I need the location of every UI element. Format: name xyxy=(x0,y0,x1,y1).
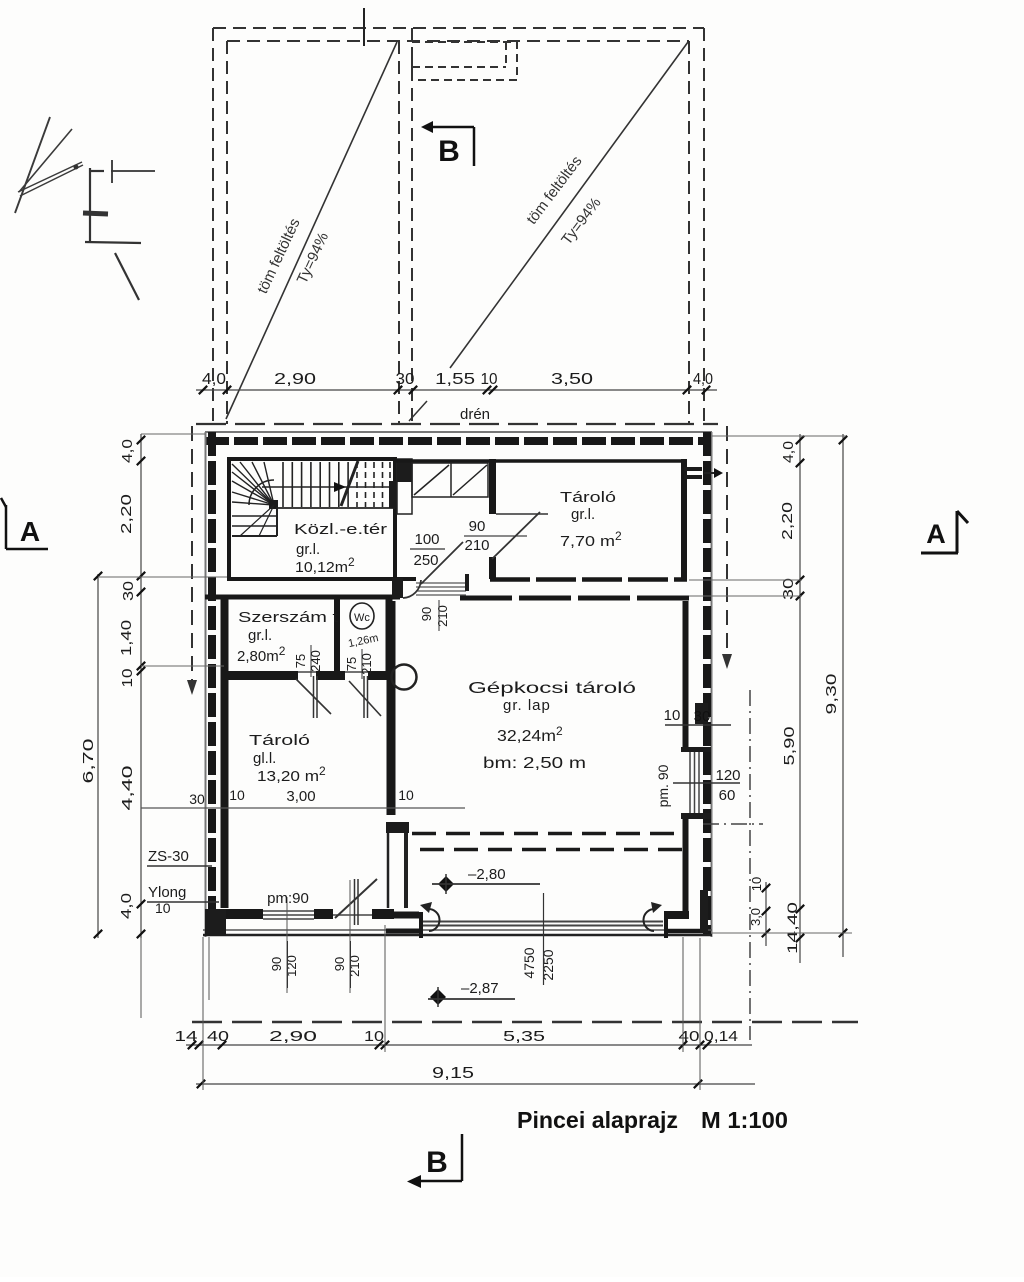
svg-text:30: 30 xyxy=(120,581,137,601)
svg-text:120: 120 xyxy=(284,955,299,977)
svg-text:4750: 4750 xyxy=(521,947,537,978)
svg-text:2,20: 2,20 xyxy=(779,502,796,540)
svg-text:2,20: 2,20 xyxy=(118,494,135,534)
svg-text:30: 30 xyxy=(189,791,205,807)
svg-text:32,24m2: 32,24m2 xyxy=(497,724,563,745)
svg-text:210: 210 xyxy=(435,605,450,627)
svg-text:1,40: 1,40 xyxy=(118,620,135,656)
svg-text:210: 210 xyxy=(359,653,374,675)
svg-text:10: 10 xyxy=(749,877,764,891)
svg-text:–2,80: –2,80 xyxy=(468,866,506,883)
svg-text:4,0: 4,0 xyxy=(118,893,135,919)
svg-text:Közl.-e.tér: Közl.-e.tér xyxy=(294,521,387,538)
svg-text:14,40: 14,40 xyxy=(784,902,800,954)
svg-text:90: 90 xyxy=(332,957,347,971)
svg-text:Wc: Wc xyxy=(354,612,370,624)
svg-text:90: 90 xyxy=(469,518,486,535)
svg-text:3,0: 3,0 xyxy=(748,908,763,926)
svg-text:1,55: 1,55 xyxy=(435,371,475,388)
svg-text:90: 90 xyxy=(269,957,284,971)
svg-text:Tároló: Tároló xyxy=(560,489,616,506)
svg-text:10: 10 xyxy=(481,371,498,388)
svg-text:240: 240 xyxy=(308,650,323,672)
svg-text:9,30: 9,30 xyxy=(823,674,840,715)
svg-text:30: 30 xyxy=(694,708,711,725)
svg-text:40: 40 xyxy=(207,1028,229,1045)
svg-text:4,40: 4,40 xyxy=(119,766,136,811)
svg-text:6,70: 6,70 xyxy=(80,739,97,784)
svg-text:ZS-30: ZS-30 xyxy=(148,848,189,865)
svg-text:2,80m2: 2,80m2 xyxy=(237,644,286,665)
svg-text:13,20 m2: 13,20 m2 xyxy=(257,764,326,785)
svg-text:210: 210 xyxy=(464,537,489,554)
svg-text:3,50: 3,50 xyxy=(551,371,593,388)
svg-text:4,0: 4,0 xyxy=(693,371,713,388)
svg-text:14: 14 xyxy=(175,1028,198,1045)
svg-text:B: B xyxy=(426,1146,448,1179)
svg-text:drén: drén xyxy=(460,406,490,423)
svg-text:10: 10 xyxy=(119,669,136,688)
svg-text:gr.l.: gr.l. xyxy=(296,541,320,558)
svg-text:30: 30 xyxy=(780,578,797,600)
svg-text:10: 10 xyxy=(398,787,414,803)
svg-text:210: 210 xyxy=(347,955,362,977)
svg-text:Pincei alaprajz: Pincei alaprajz xyxy=(517,1107,678,1133)
svg-text:Gépkocsi tároló: Gépkocsi tároló xyxy=(468,680,636,697)
svg-text:gr. lap: gr. lap xyxy=(503,697,551,714)
svg-text:–2,87: –2,87 xyxy=(461,980,499,997)
svg-text:4,0: 4,0 xyxy=(202,371,226,388)
svg-text:bm: 2,50 m: bm: 2,50 m xyxy=(483,755,586,772)
svg-text:Tároló: Tároló xyxy=(249,732,310,749)
svg-text:pm. 90: pm. 90 xyxy=(655,764,671,807)
svg-text:10: 10 xyxy=(364,1028,384,1045)
svg-text:5,35: 5,35 xyxy=(503,1028,545,1045)
svg-text:120: 120 xyxy=(715,767,740,784)
svg-text:9,15: 9,15 xyxy=(432,1065,474,1082)
svg-text:gr.l.: gr.l. xyxy=(248,627,272,644)
svg-text:pm:90: pm:90 xyxy=(267,890,309,907)
svg-text:2,90: 2,90 xyxy=(274,371,316,388)
svg-text:A: A xyxy=(20,516,40,547)
svg-text:4,0: 4,0 xyxy=(119,439,136,463)
svg-text:30: 30 xyxy=(396,371,415,388)
svg-text:2,90: 2,90 xyxy=(269,1028,317,1045)
svg-text:gr.l.: gr.l. xyxy=(571,506,595,523)
svg-text:2250: 2250 xyxy=(540,949,556,980)
svg-text:3,00: 3,00 xyxy=(286,788,315,805)
svg-text:7,70 m2: 7,70 m2 xyxy=(560,529,622,550)
svg-text:10: 10 xyxy=(155,900,171,916)
svg-text:250: 250 xyxy=(413,552,438,569)
svg-text:M 1:100: M 1:100 xyxy=(701,1107,788,1133)
svg-text:10: 10 xyxy=(664,707,681,724)
svg-text:60: 60 xyxy=(719,787,736,804)
svg-text:B: B xyxy=(438,135,460,168)
svg-text:A: A xyxy=(926,519,946,549)
svg-text:gl.l.: gl.l. xyxy=(253,750,276,767)
svg-text:75: 75 xyxy=(344,657,359,671)
svg-text:100: 100 xyxy=(414,531,439,548)
svg-text:4,0: 4,0 xyxy=(780,441,797,463)
svg-text:Ylong: Ylong xyxy=(148,884,186,901)
svg-text:90: 90 xyxy=(419,607,434,621)
svg-text:40: 40 xyxy=(679,1028,700,1045)
svg-text:0,14: 0,14 xyxy=(704,1028,738,1045)
svg-text:10: 10 xyxy=(229,787,245,803)
svg-text:10,12m2: 10,12m2 xyxy=(295,555,355,576)
svg-text:5,90: 5,90 xyxy=(781,727,798,766)
svg-text:Szerszám t: Szerszám t xyxy=(238,609,339,626)
svg-text:75: 75 xyxy=(293,654,308,668)
